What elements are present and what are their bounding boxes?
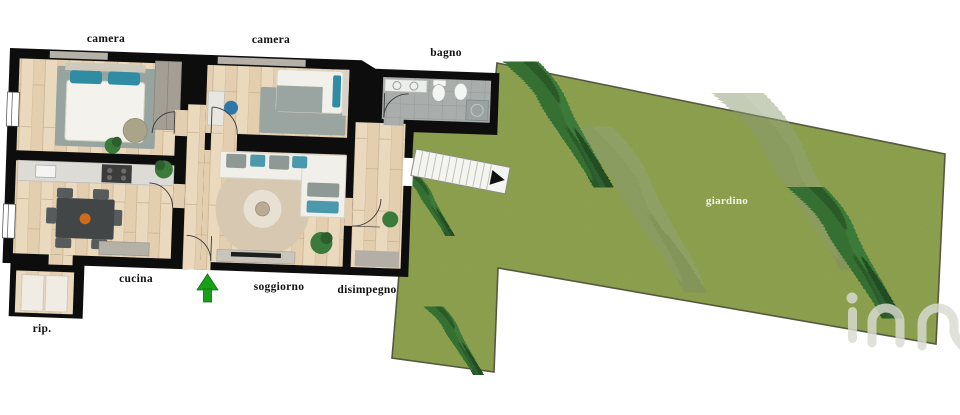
- cushion: [307, 182, 339, 197]
- label-ripostiglio: rip.: [33, 323, 52, 335]
- door-opening: [48, 254, 72, 265]
- chair: [93, 189, 109, 200]
- vanity: [385, 79, 427, 92]
- closet-door: [45, 275, 68, 312]
- door-opening: [344, 198, 353, 226]
- sink: [36, 165, 56, 178]
- room-disimpegno: [351, 122, 406, 269]
- floor-plan-svg: camera camera bagno cucina soggiorno dis…: [0, 0, 960, 415]
- label-bagno: bagno: [430, 47, 462, 59]
- pouf: [123, 118, 148, 143]
- shower: [466, 100, 489, 121]
- pillow: [70, 70, 102, 84]
- door-opening: [174, 110, 189, 136]
- label-disimpegno: disimpegno: [337, 284, 396, 296]
- door-opening: [384, 116, 404, 126]
- pillow: [108, 71, 140, 85]
- sideboard: [99, 241, 149, 256]
- coffee-table: [255, 202, 269, 216]
- label-camera-1: camera: [87, 33, 125, 45]
- entrance-opening: [185, 259, 210, 270]
- blanket: [276, 85, 323, 113]
- window: [6, 92, 19, 126]
- cooktop: [101, 164, 132, 183]
- window: [2, 204, 15, 238]
- label-cucina: cucina: [119, 273, 153, 285]
- floor-plan-canvas: camera camera bagno cucina soggiorno dis…: [0, 0, 960, 415]
- label-giardino: giardino: [706, 195, 748, 207]
- pillow: [332, 75, 341, 107]
- cushion: [250, 154, 265, 167]
- desk: [207, 91, 224, 126]
- cushion: [292, 156, 307, 169]
- door-opening: [211, 132, 238, 152]
- cushion: [306, 200, 338, 213]
- chair: [46, 207, 57, 223]
- cabinet: [355, 250, 400, 268]
- label-camera-2: camera: [252, 34, 290, 46]
- wc: [432, 84, 446, 101]
- bidet: [454, 83, 468, 100]
- cushion: [226, 154, 246, 169]
- label-soggiorno: soggiorno: [254, 281, 305, 293]
- closet-door: [21, 275, 44, 312]
- chair: [57, 188, 73, 199]
- cushion: [269, 155, 289, 170]
- door-opening: [173, 184, 186, 208]
- chair: [55, 238, 71, 249]
